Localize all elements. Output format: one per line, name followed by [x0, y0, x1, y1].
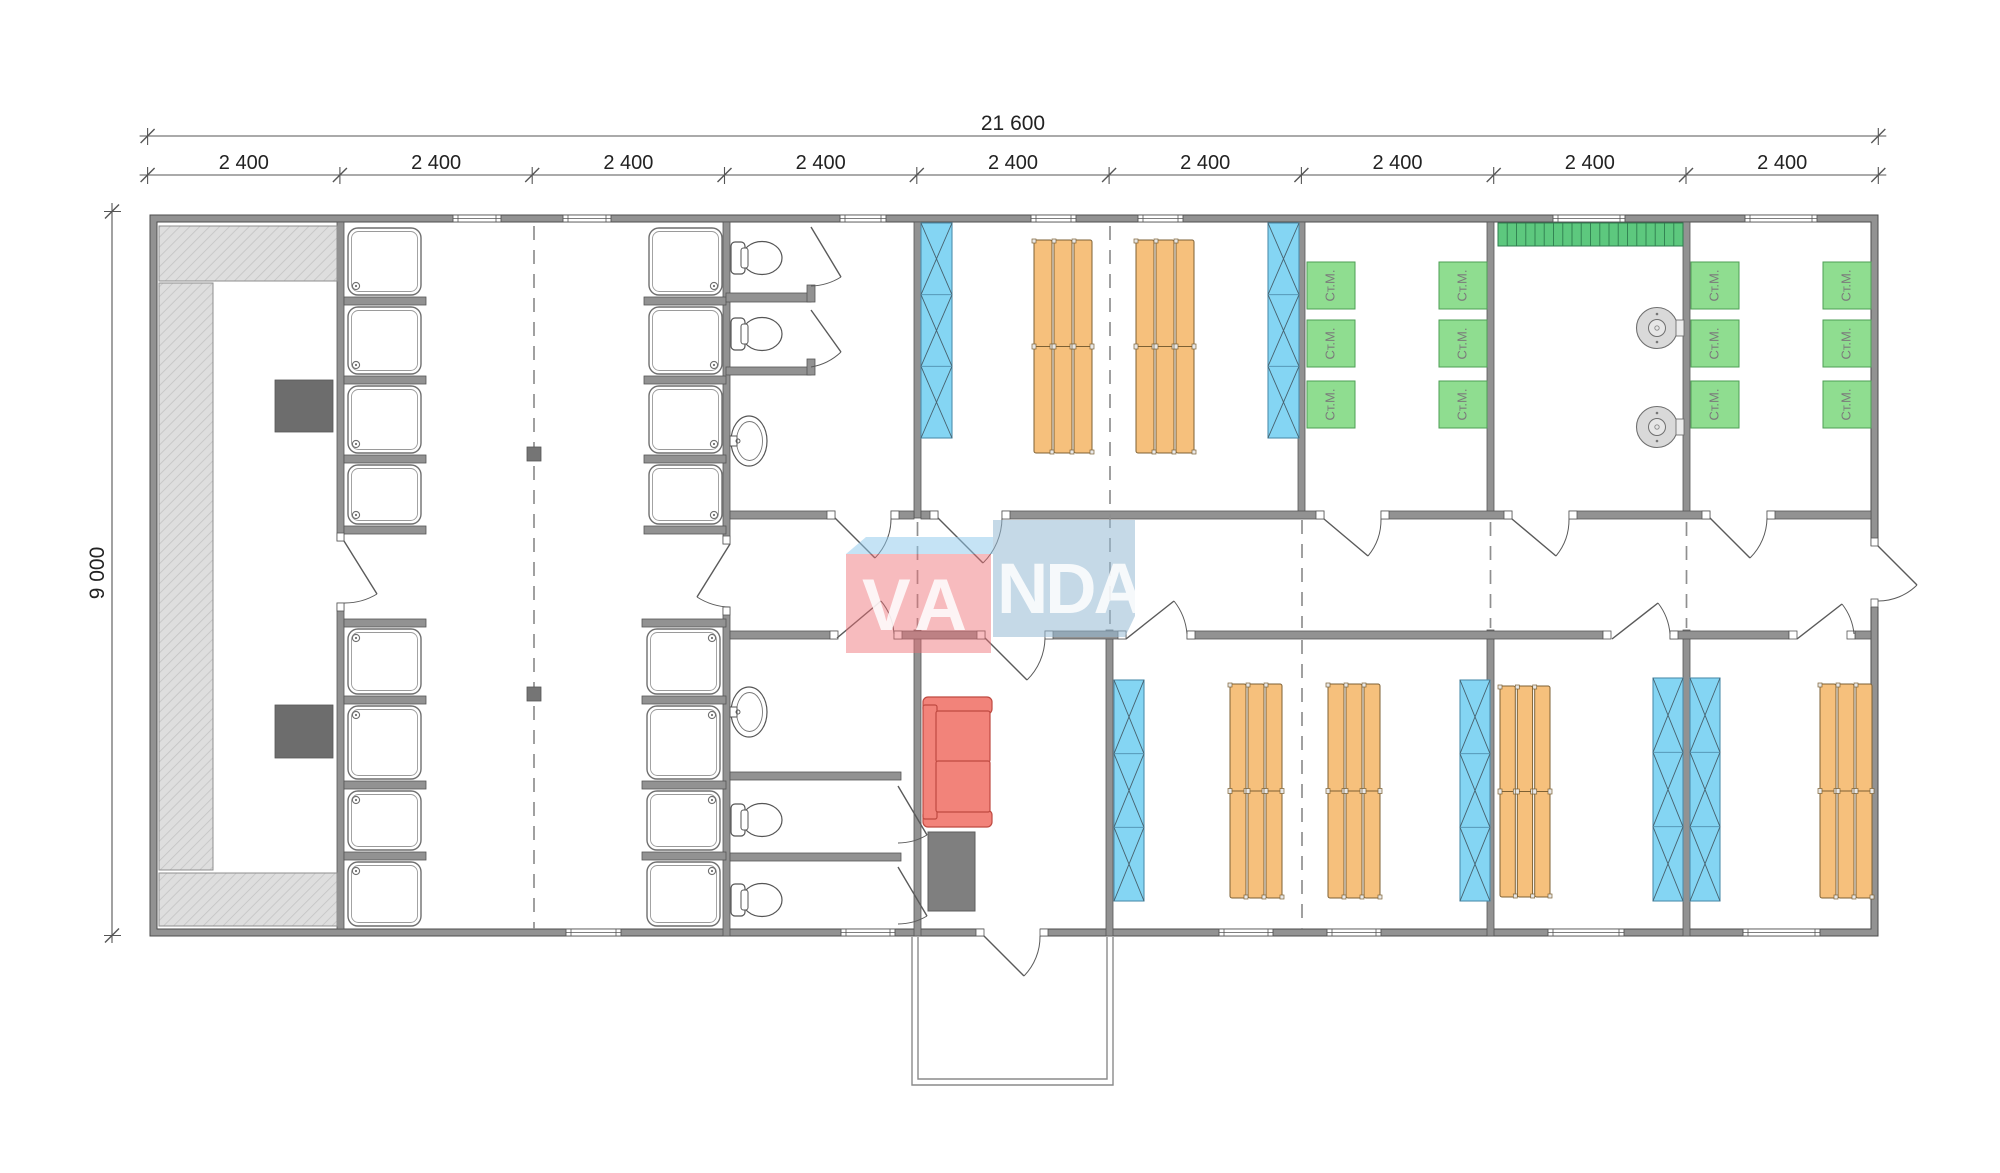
- svg-text:2 400: 2 400: [603, 152, 653, 174]
- svg-text:Ст.М.: Ст.М.: [1322, 270, 1337, 302]
- svg-text:2 400: 2 400: [796, 152, 846, 174]
- svg-text:2 400: 2 400: [1372, 152, 1422, 174]
- svg-text:2 400: 2 400: [411, 152, 461, 174]
- svg-text:2 400: 2 400: [1757, 152, 1807, 174]
- svg-text:Ст.М.: Ст.М.: [1454, 389, 1469, 421]
- svg-text:Ст.М.: Ст.М.: [1838, 270, 1853, 302]
- svg-text:Ст.М.: Ст.М.: [1322, 389, 1337, 421]
- svg-text:21 600: 21 600: [981, 112, 1045, 135]
- svg-text:2 400: 2 400: [1180, 152, 1230, 174]
- svg-text:Ст.М.: Ст.М.: [1454, 328, 1469, 360]
- svg-text:Ст.М.: Ст.М.: [1838, 328, 1853, 360]
- svg-text:2 400: 2 400: [219, 152, 269, 174]
- svg-text:Ст.М.: Ст.М.: [1322, 328, 1337, 360]
- svg-text:2 400: 2 400: [988, 152, 1038, 174]
- svg-text:9 000: 9 000: [86, 547, 109, 600]
- svg-text:VA: VA: [862, 565, 976, 646]
- svg-text:Ст.М.: Ст.М.: [1706, 389, 1721, 421]
- svg-text:Ст.М.: Ст.М.: [1706, 328, 1721, 360]
- svg-text:2 400: 2 400: [1565, 152, 1615, 174]
- svg-text:NDA: NDA: [997, 550, 1144, 629]
- svg-text:Ст.М.: Ст.М.: [1706, 270, 1721, 302]
- svg-text:Ст.М.: Ст.М.: [1838, 389, 1853, 421]
- svg-text:Ст.М.: Ст.М.: [1454, 270, 1469, 302]
